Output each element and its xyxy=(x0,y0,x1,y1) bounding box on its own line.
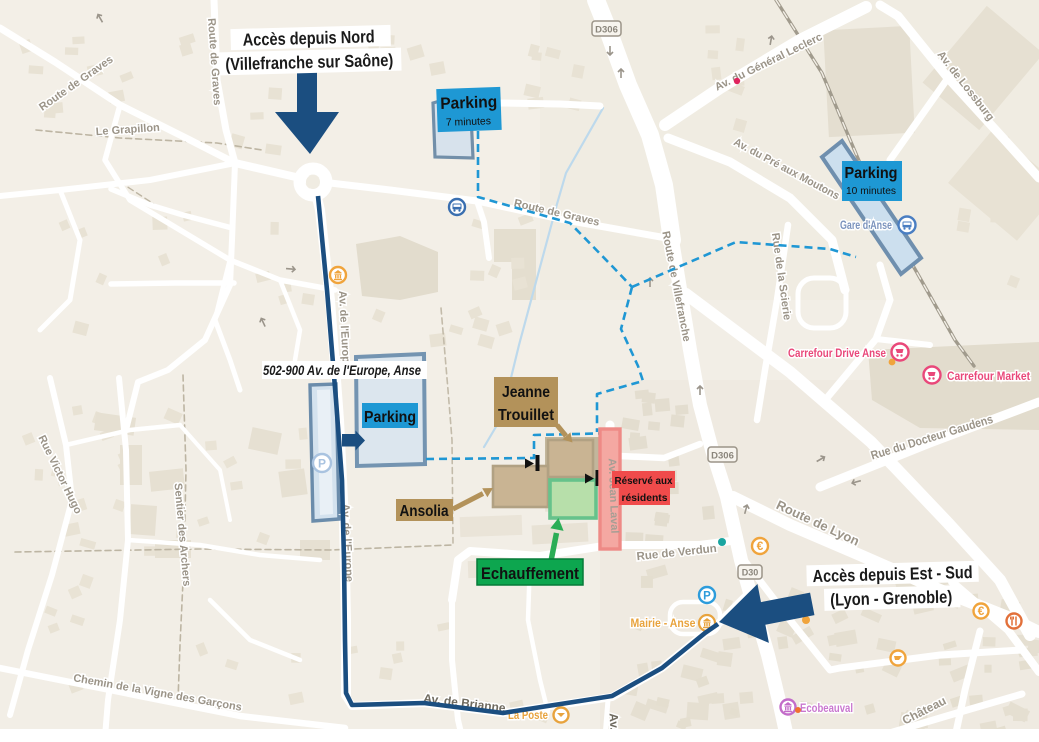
svg-text:Ansolia: Ansolia xyxy=(400,503,449,520)
svg-text:502-900 Av. de l'Europe, Anse: 502-900 Av. de l'Europe, Anse xyxy=(263,362,421,378)
svg-text:7 minutes: 7 minutes xyxy=(446,115,491,129)
svg-text:P: P xyxy=(318,457,326,471)
svg-text:D30: D30 xyxy=(742,568,759,578)
svg-text:D306: D306 xyxy=(711,451,734,462)
svg-text:Av.: Av. xyxy=(607,713,622,731)
svg-text:Carrefour Market: Carrefour Market xyxy=(947,369,1030,383)
svg-text:Jeanne: Jeanne xyxy=(502,384,550,401)
svg-text:Carrefour Drive Anse: Carrefour Drive Anse xyxy=(788,346,886,360)
svg-text:P: P xyxy=(703,591,711,603)
svg-text:Parking: Parking xyxy=(364,409,416,426)
svg-text:Parking: Parking xyxy=(845,165,898,182)
svg-text:D306: D306 xyxy=(595,25,618,36)
svg-text:Mairie - Anse: Mairie - Anse xyxy=(631,618,696,630)
svg-text:Réservé aux: Réservé aux xyxy=(615,475,673,487)
svg-text:€: € xyxy=(978,604,985,618)
svg-text:(Lyon - Grenoble): (Lyon - Grenoble) xyxy=(830,587,952,610)
svg-text:10 minutes: 10 minutes xyxy=(846,185,896,197)
svg-text:Gare d'Anse: Gare d'Anse xyxy=(840,220,892,232)
svg-text:Ecobeauval: Ecobeauval xyxy=(800,703,853,715)
svg-text:Accès depuis Nord: Accès depuis Nord xyxy=(242,26,374,49)
svg-text:Echauffement: Echauffement xyxy=(481,565,579,583)
svg-text:Trouillet: Trouillet xyxy=(498,407,554,424)
svg-text:Parking: Parking xyxy=(440,93,498,113)
svg-text:Accès depuis Est - Sud: Accès depuis Est - Sud xyxy=(812,562,972,586)
svg-text:€: € xyxy=(757,539,764,553)
svg-text:résidents: résidents xyxy=(622,492,668,504)
